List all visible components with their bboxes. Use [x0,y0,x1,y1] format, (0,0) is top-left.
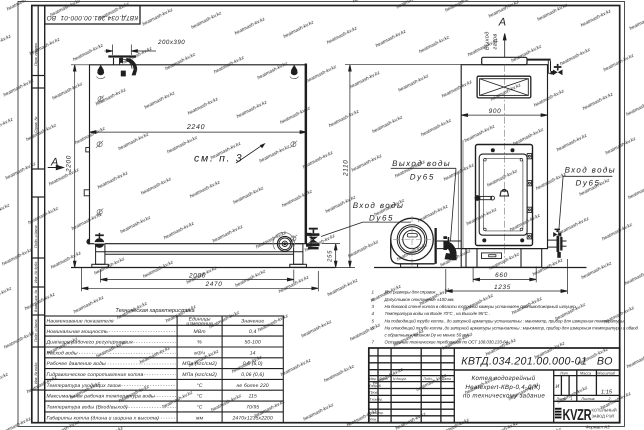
svg-text:На отводящей трубе котла ,до з: На отводящей трубе котла ,до запорной ар… [385,326,639,331]
svg-text:Вход воды: Вход воды [353,201,404,210]
svg-text:На подводящей трубе котла , д: На подводящей трубе котла , до запорной … [385,318,625,323]
svg-text:Перв. примен.: Перв. примен. [34,42,38,66]
svg-text:KVZR: KVZR [563,407,592,424]
svg-text:МПа (кгс/см2): МПа (кгс/см2) [182,372,217,378]
svg-text:115: 115 [248,394,256,400]
svg-text:Остальные технические требован: Остальные технические требования по ОСТ … [385,340,509,345]
svg-text:Инв. № подл.: Инв. № подл. [34,362,38,384]
svg-text:Номинальная мощность: Номинальная мощность [47,329,109,335]
svg-text:Листов: Листов [580,397,594,401]
svg-text:газов: газов [493,33,499,49]
svg-text:Справ. №: Справ. № [34,117,38,133]
svg-text:Взам. инв. №: Взам. инв. № [34,290,38,312]
svg-text:Температура воды на Входе 70°: Температура воды на Входе 70°С , на Выхо… [385,311,491,316]
svg-text:Подп.: Подп. [424,377,433,381]
svg-text:ЗАВОД РЭП: ЗАВОД РЭП [592,414,615,419]
svg-text:50-100: 50-100 [244,340,261,346]
svg-text:КВТД.034.201.00.000-01 ВО: КВТД.034.201.00.000-01 ВО [461,356,613,368]
svg-text:Heatexpert-КВр-0,4-Д(К): Heatexpert-КВр-0,4-Д(К) [465,384,540,391]
svg-text:Утв.: Утв. [369,418,377,422]
svg-text:с обратным клапаном Dу не мен: с обратным клапаном Dу не менее 50 мм. [385,332,470,337]
svg-text:2470х1235х2200: 2470х1235х2200 [231,415,273,421]
svg-text:На боковой стене котла в облас: На боковой стене котла в области топочно… [385,304,577,309]
svg-text:Масса: Масса [580,371,591,375]
svg-text:Температура уходящих газов: Температура уходящих газов [47,383,122,389]
svg-text:Dy65: Dy65 [576,179,601,188]
svg-text:Расход воды: Расход воды [47,350,78,356]
svg-text:N докум.: N докум. [393,377,407,381]
svg-text:МВт: МВт [194,329,206,335]
svg-text:Гидравлическое сопротивление к: Гидравлическое сопротивление котла [47,372,144,378]
svg-text:Инв. № дубл.: Инв. № дубл. [34,261,38,283]
svg-text:2200: 2200 [66,155,73,173]
svg-text:МПа (кгс/см2): МПа (кгс/см2) [182,361,217,367]
svg-text:255: 255 [327,250,334,263]
svg-text:Дата: Дата [441,377,451,381]
svg-text:не более 220: не более 220 [237,383,269,389]
svg-text:Наименование показателя: Наименование показателя [47,319,114,325]
svg-text:мм: мм [196,415,204,421]
svg-text:2000: 2000 [188,272,206,279]
svg-text:Т.контр.: Т.контр. [369,398,383,402]
svg-text:0,4: 0,4 [249,329,256,335]
svg-text:Котел водогрейный: Котел водогрейный [472,375,536,382]
svg-text:2470: 2470 [204,281,222,288]
svg-text:Лит.: Лит. [559,371,569,375]
svg-text:660: 660 [495,272,508,279]
svg-text:0,6 (6,0): 0,6 (6,0) [243,361,263,367]
svg-text:измерения: измерения [186,321,213,327]
svg-text:Лист: Лист [556,397,566,401]
svg-text:70/95: 70/95 [246,405,259,411]
svg-text:Вход воды: Вход воды [565,166,616,175]
svg-text:И: И [556,384,560,390]
svg-text:900: 900 [489,108,502,115]
svg-text:Все размеры для справок: Все размеры для справок [385,290,437,295]
svg-text:2240: 2240 [186,124,205,131]
svg-text:1:15: 1:15 [601,390,613,396]
svg-text:Разраб.: Разраб. [369,384,381,388]
svg-text:Изм.: Изм. [369,377,376,381]
svg-text:Диапазон рабочего регулировани: Диапазон рабочего регулирования [46,340,133,346]
svg-text:1235: 1235 [494,284,511,291]
svg-text:КВТД.034.201.00.000-01 ВО: КВТД.034.201.00.000-01 ВО [46,14,138,21]
svg-text:Dy65: Dy65 [369,214,394,223]
svg-text:2110: 2110 [342,159,349,177]
svg-text:Габариты котла (длина и ширина: Габариты котла (длина и ширина х высота) [47,415,160,421]
svg-text:КОТЕЛЬНЫЙ: КОТЕЛЬНЫЙ [592,408,617,413]
svg-text:Пров.: Пров. [369,391,378,395]
svg-text:Выход воды: Выход воды [392,159,451,168]
svg-text:°С: °С [197,383,203,389]
svg-text:Значение: Значение [241,319,264,325]
svg-text:Техническая характеристика: Техническая характеристика [115,308,194,314]
svg-text:по техническому задание: по техническому задание [463,392,545,399]
svg-text:Лист: Лист [378,377,388,381]
svg-text:2: 2 [608,397,611,401]
svg-text:Формат А3: Формат А3 [586,424,611,429]
svg-text:0,06 (0,6): 0,06 (0,6) [241,372,264,378]
svg-text:1: 1 [571,397,573,401]
svg-text:Подп. и дата: Подп. и дата [34,226,38,249]
svg-text:Масштаб: Масштаб [597,371,616,375]
svg-text:200х390: 200х390 [157,39,185,46]
svg-text:Н.контр.: Н.контр. [369,411,383,415]
svg-text:Dy65: Dy65 [410,173,435,182]
svg-text:Допустимое отклонение ±100 мм: Допустимое отклонение ±100 мм. [384,297,455,302]
svg-text:Максимальная рабочая температу: Максимальная рабочая температура воды [47,394,156,400]
svg-text:Рабочее давление воды: Рабочее давление воды [47,361,106,367]
svg-text:м3/ч: м3/ч [194,350,205,356]
svg-text:°С: °С [197,405,203,411]
svg-text:%: % [197,340,202,346]
svg-text:14: 14 [250,350,256,356]
svg-text:Температура воды (Вход/выход): Температура воды (Вход/выход) [47,405,128,411]
svg-text:А: А [498,17,506,29]
svg-text:°С: °С [197,394,203,400]
svg-text:Подп. и дата: Подп. и дата [34,320,38,343]
svg-text:Выход: Выход [484,31,491,50]
